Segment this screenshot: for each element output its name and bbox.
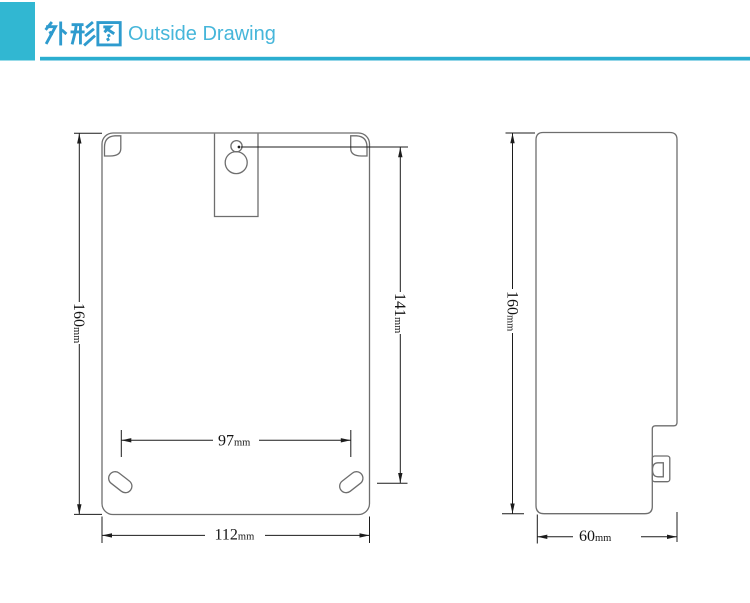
svg-text:141mm: 141mm (391, 293, 408, 333)
svg-text:112mm: 112mm (215, 527, 255, 544)
svg-text:97mm: 97mm (218, 432, 250, 449)
svg-text:160mm: 160mm (70, 303, 87, 343)
svg-text:60mm: 60mm (579, 528, 611, 545)
svg-text:Outside Drawing: Outside Drawing (128, 23, 276, 45)
svg-text:160mm: 160mm (503, 291, 520, 331)
